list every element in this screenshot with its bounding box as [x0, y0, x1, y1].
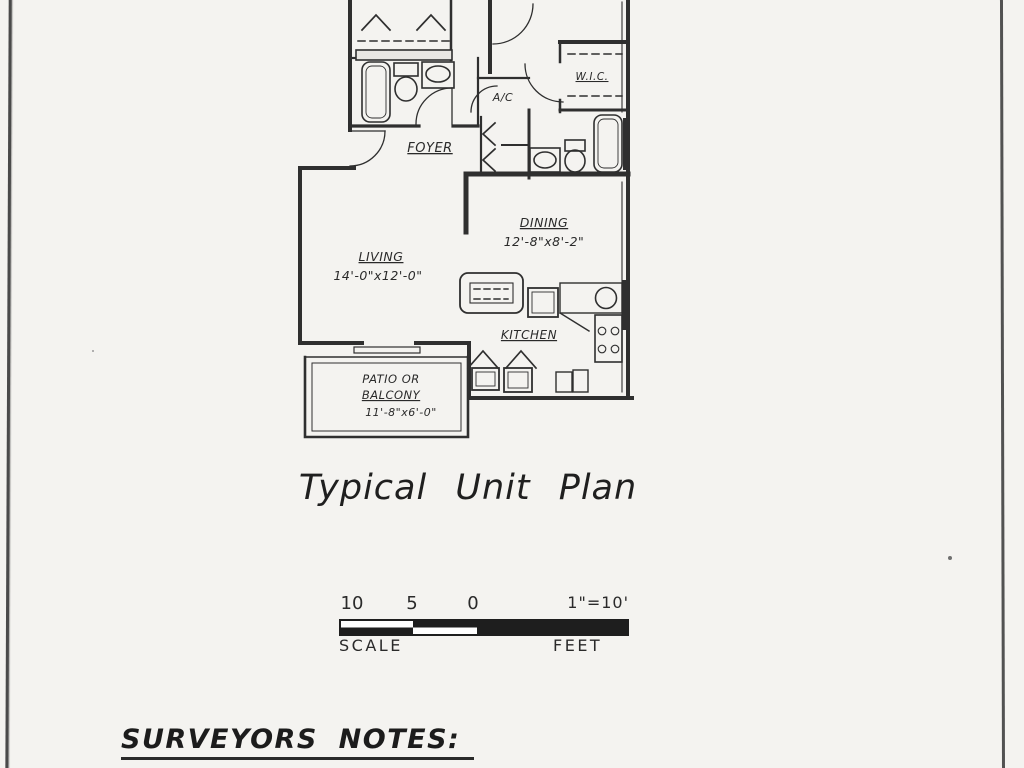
- toilet-tank: [394, 63, 418, 76]
- kitchen-counter: [560, 283, 622, 313]
- kitchen-label: KITCHEN: [501, 328, 557, 342]
- scale-bar-segment: [341, 621, 413, 634]
- feet-caption: FEET: [553, 636, 602, 655]
- kitchen-sink: [596, 288, 617, 309]
- plan-title: Typical Unit Plan: [268, 468, 668, 508]
- dining-label: DINING: [520, 215, 568, 230]
- scale-bar-graphic: [339, 619, 629, 636]
- bifold-door-chevrons: [362, 15, 536, 368]
- living-label: LIVING: [359, 249, 404, 264]
- wall-opening-panel: [623, 118, 629, 170]
- washer: [556, 372, 572, 392]
- scan-speck: [948, 556, 952, 560]
- scale-ratio: 1"=10': [567, 593, 629, 612]
- toilet-bowl: [565, 150, 585, 172]
- wic-label: W.I.C.: [576, 71, 609, 83]
- scale-tick-5: 5: [406, 593, 417, 614]
- scale-tick-0: 0: [467, 593, 478, 614]
- range: [595, 315, 622, 362]
- scanned-floor-plan-page: FOYER A/C W.I.C. DINING 12'-8"x8'-2" LIV…: [0, 0, 1024, 768]
- scale-bar-segment: [413, 621, 477, 634]
- sink-basin: [426, 66, 450, 82]
- surveyors-notes-heading: SURVEYORS NOTES:: [121, 724, 474, 760]
- closet-shelf: [356, 41, 452, 60]
- living-dims: 14'-0"x12'-0": [333, 268, 422, 283]
- bathroom-fixtures: [362, 62, 454, 122]
- scan-edge-line-right: [1000, 0, 1005, 768]
- scale-caption: SCALE: [339, 636, 403, 655]
- toilet-bowl: [395, 77, 417, 101]
- graphic-scale: 10 5 0 1"=10' SCALE FEET: [335, 593, 631, 655]
- ac-label: A/C: [492, 91, 513, 104]
- foyer-label: FOYER: [407, 141, 452, 156]
- patio-label-2: BALCONY: [362, 388, 421, 402]
- sink-basin: [534, 152, 556, 168]
- scan-speck: [92, 350, 94, 352]
- scan-edge-line-left: [5, 0, 11, 768]
- dining-dims: 12'-8"x8'-2": [504, 234, 585, 249]
- patio-label-1: PATIO OR: [362, 372, 420, 386]
- floor-plan-drawing: FOYER A/C W.I.C. DINING 12'-8"x8'-2" LIV…: [288, 0, 648, 450]
- bathroom-fixtures: [530, 115, 622, 172]
- sliding-door: [354, 347, 420, 353]
- patio-dims: 11'-8"x6'-0": [365, 406, 437, 419]
- wall-opening-panel: [622, 280, 629, 330]
- dryer: [573, 370, 588, 392]
- scale-tick-10: 10: [341, 593, 364, 614]
- scale-bar-segment: [477, 621, 627, 634]
- door-swings: [350, 4, 563, 166]
- walls: [300, 0, 632, 398]
